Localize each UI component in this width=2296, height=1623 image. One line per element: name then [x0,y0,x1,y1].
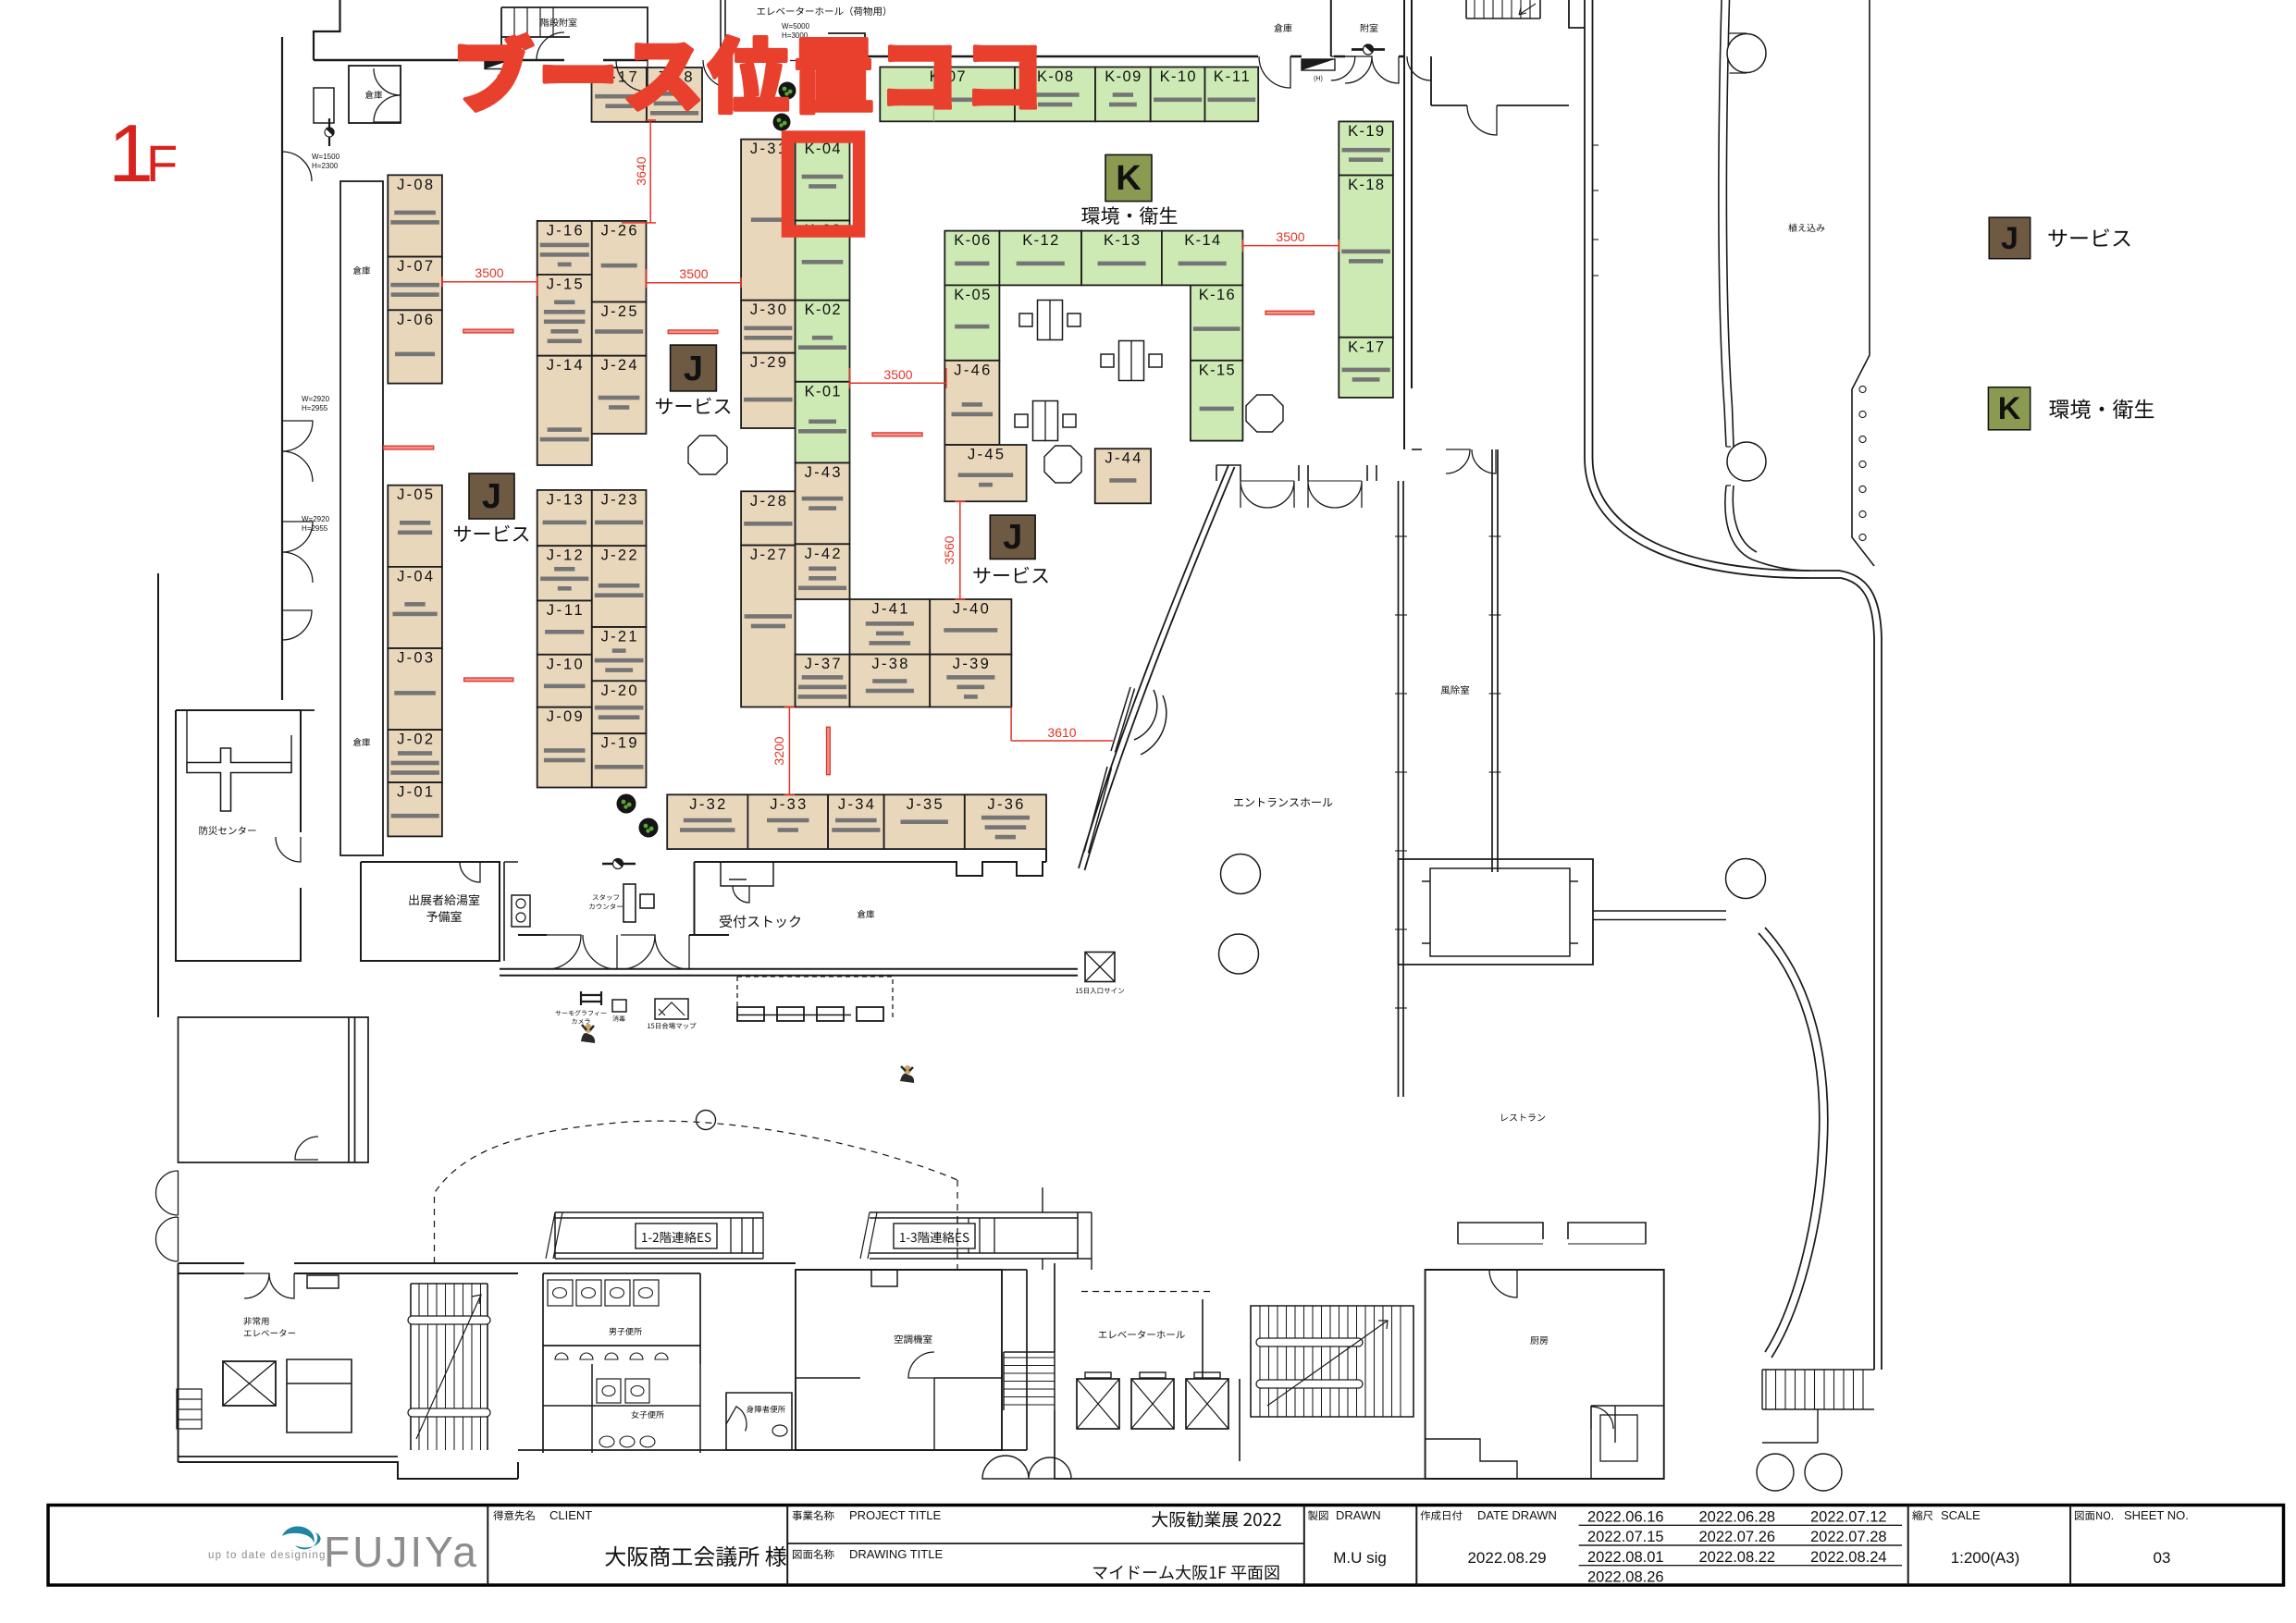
svg-text:K-17: K-17 [1348,338,1384,355]
svg-text:J-44: J-44 [1105,450,1141,467]
svg-text:K-18: K-18 [1348,177,1384,193]
svg-text:J-11: J-11 [547,602,583,619]
svg-text:2022.07.12: 2022.07.12 [1810,1509,1887,1526]
svg-text:J-34: J-34 [838,796,874,813]
svg-text:J-26: J-26 [601,222,637,239]
svg-text:J-04: J-04 [397,568,433,584]
svg-text:J-02: J-02 [397,732,433,748]
svg-text:3200: 3200 [772,736,786,765]
svg-text:W=2920: W=2920 [302,395,330,403]
svg-text:J-09: J-09 [547,708,583,725]
svg-text:J-20: J-20 [601,682,637,699]
svg-text:FUJIYa: FUJIYa [324,1528,479,1576]
svg-text:K-16: K-16 [1199,287,1235,303]
svg-text:2022.07.15: 2022.07.15 [1587,1529,1664,1545]
svg-text:H=2955: H=2955 [302,524,328,533]
svg-text:J-15: J-15 [547,276,583,292]
svg-text:J: J [482,477,501,516]
svg-text:3640: 3640 [634,156,648,185]
svg-text:3610: 3610 [1047,725,1076,740]
svg-text:3500: 3500 [883,367,912,382]
svg-text:H=2955: H=2955 [302,404,328,412]
svg-text:J-01: J-01 [397,784,433,801]
svg-text:J-25: J-25 [601,303,637,320]
svg-text:J-13: J-13 [547,491,583,508]
svg-text:2022.06.28: 2022.06.28 [1699,1509,1776,1526]
svg-text:J-03: J-03 [397,650,433,667]
svg-text:K-13: K-13 [1104,232,1140,249]
svg-text:J-33: J-33 [770,796,806,813]
svg-text:SHEET NO.: SHEET NO. [2124,1508,2189,1522]
svg-text:H=2300: H=2300 [312,162,339,170]
svg-text:K-01: K-01 [805,383,841,400]
svg-text:3500: 3500 [1276,229,1304,244]
svg-text:J-05: J-05 [397,486,433,503]
svg-text:J-45: J-45 [968,447,1004,463]
svg-text:J-40: J-40 [953,601,989,618]
svg-text:K-08: K-08 [1037,68,1073,85]
svg-text:J-41: J-41 [871,601,907,618]
svg-text:DRAWING TITLE: DRAWING TITLE [849,1547,943,1561]
svg-text:J-14: J-14 [547,357,583,374]
svg-text:2022.08.26: 2022.08.26 [1587,1569,1664,1586]
svg-text:J-39: J-39 [953,656,989,672]
svg-text:3500: 3500 [679,266,708,281]
svg-text:J-30: J-30 [750,301,786,318]
svg-text:K-11: K-11 [1214,68,1250,85]
svg-text:J-29: J-29 [750,354,786,371]
svg-text:J-32: J-32 [689,796,725,813]
svg-text:K: K [1116,159,1142,198]
svg-text:J-22: J-22 [601,547,637,564]
svg-text:J-43: J-43 [805,464,841,481]
svg-text:DRAWN: DRAWN [1336,1508,1381,1522]
svg-text:K-14: K-14 [1184,232,1220,249]
svg-text:2022.07.26: 2022.07.26 [1699,1529,1776,1545]
svg-text:3500: 3500 [475,265,503,280]
svg-text:SCALE: SCALE [1941,1508,1981,1522]
svg-text:K-15: K-15 [1199,362,1235,378]
svg-text:J: J [1003,518,1022,557]
svg-text:J-42: J-42 [805,546,841,562]
svg-text:J-12: J-12 [547,547,583,564]
svg-text:K-10: K-10 [1160,68,1196,85]
svg-text:K-09: K-09 [1105,68,1141,85]
svg-text:J-23: J-23 [601,491,637,508]
svg-text:(H): (H) [1314,76,1323,82]
svg-text:03: 03 [2154,1549,2171,1567]
svg-text:J-28: J-28 [750,493,786,510]
svg-text:K-19: K-19 [1348,123,1384,140]
svg-text:up to date designing: up to date designing [208,1550,327,1561]
svg-text:J-46: J-46 [954,362,990,378]
svg-text:K-12: K-12 [1022,232,1058,249]
svg-text:M.U sig: M.U sig [1333,1549,1387,1567]
svg-text:J-27: J-27 [750,547,786,563]
svg-text:J-06: J-06 [397,312,433,328]
svg-text:2022.08.24: 2022.08.24 [1810,1549,1887,1566]
svg-text:1:200(A3): 1:200(A3) [1951,1549,2020,1567]
svg-text:DATE DRAWN: DATE DRAWN [1477,1508,1557,1522]
svg-text:2022.08.29: 2022.08.29 [1467,1549,1546,1567]
svg-text:J-08: J-08 [397,177,433,193]
svg-text:W=1500: W=1500 [312,153,340,161]
svg-text:CLIENT: CLIENT [549,1508,592,1522]
svg-text:J-36: J-36 [987,796,1023,813]
svg-text:2022.08.01: 2022.08.01 [1587,1549,1664,1566]
svg-text:2022.06.16: 2022.06.16 [1587,1509,1664,1526]
svg-text:K: K [1998,391,2021,426]
svg-text:J-24: J-24 [601,357,637,374]
svg-text:J-31: J-31 [750,141,786,157]
svg-text:J: J [2001,221,2018,256]
svg-text:K-04: K-04 [805,141,841,157]
svg-text:PROJECT TITLE: PROJECT TITLE [849,1508,942,1522]
svg-text:K-05: K-05 [954,287,990,303]
svg-text:2022.07.28: 2022.07.28 [1810,1529,1887,1545]
svg-text:J-21: J-21 [601,629,637,646]
svg-text:J-35: J-35 [907,796,943,813]
svg-text:J-38: J-38 [871,656,907,672]
svg-text:J-10: J-10 [547,656,583,672]
svg-text:W=2920: W=2920 [302,515,330,523]
svg-text:J-16: J-16 [547,222,583,239]
svg-text:W=5000: W=5000 [782,22,810,31]
svg-text:3560: 3560 [942,535,957,564]
svg-text:F: F [146,134,178,192]
svg-text:2022.08.22: 2022.08.22 [1699,1549,1776,1566]
svg-text:K-02: K-02 [805,301,841,318]
svg-text:J-19: J-19 [601,735,637,752]
svg-text:J-07: J-07 [397,258,433,275]
svg-text:J: J [684,350,703,388]
svg-text:K-06: K-06 [954,232,990,249]
svg-text:J-37: J-37 [805,656,841,672]
